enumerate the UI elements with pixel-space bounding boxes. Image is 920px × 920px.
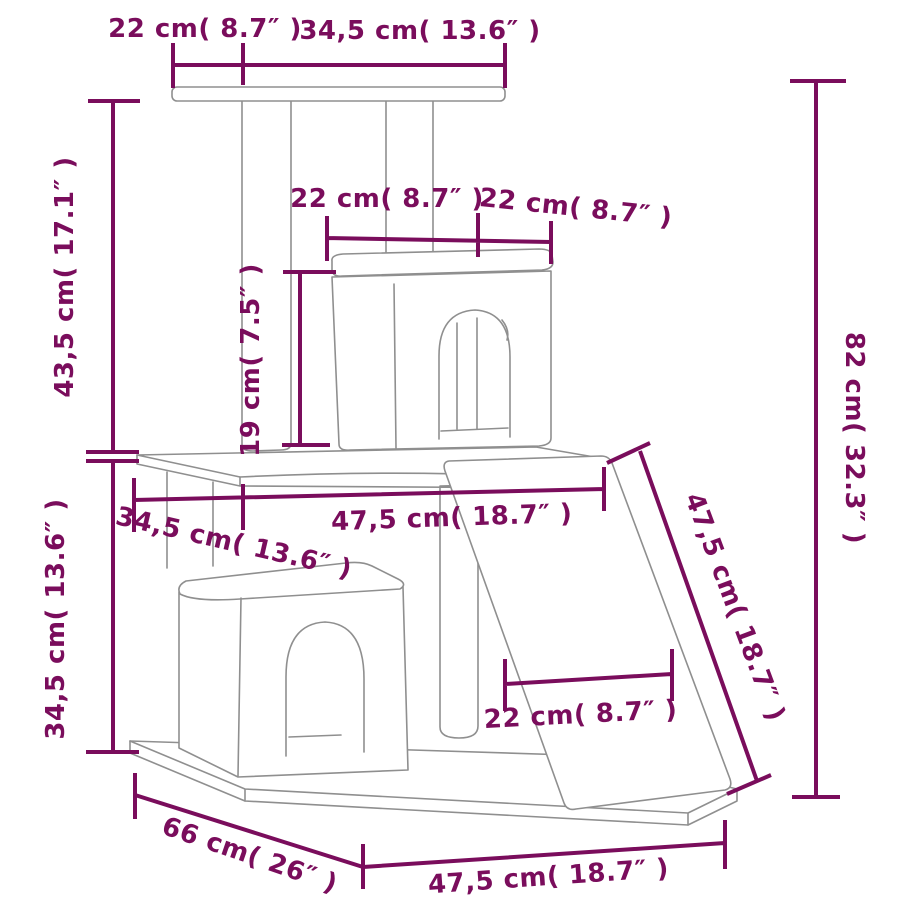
dim-label-post-height: 19 cm( 7.5″ ) [236,263,266,457]
upper-condo-body [332,271,551,450]
dim-label-total-height: 82 cm( 32.3″ ) [839,332,869,544]
top-platform [172,87,505,101]
dim-label-top-platform-depth: 22 cm( 8.7″ ) [108,14,302,44]
dimension-diagram: 22 cm( 8.7″ ) 34,5 cm( 13.6″ ) 43,5 cm( … [0,0,920,920]
lower-condo-body [179,587,408,777]
dim-label-upper-section-height: 43,5 cm( 17.1″ ) [50,156,80,397]
dim-label-condo-width-left: 22 cm( 8.7″ ) [290,184,484,214]
diagram-canvas: 22 cm( 8.7″ ) 34,5 cm( 13.6″ ) 43,5 cm( … [0,0,920,920]
dim-label-top-platform-width: 34,5 cm( 13.6″ ) [299,16,540,46]
dim-label-lower-section-height: 34,5 cm( 13.6″ ) [41,498,71,739]
